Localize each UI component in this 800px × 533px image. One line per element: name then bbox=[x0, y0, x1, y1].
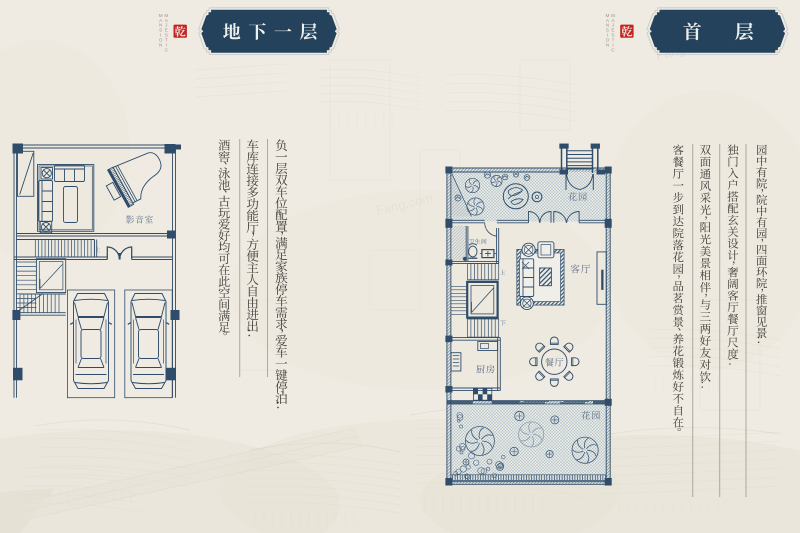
svg-text:N: N bbox=[159, 43, 162, 48]
svg-text:N: N bbox=[606, 43, 609, 48]
